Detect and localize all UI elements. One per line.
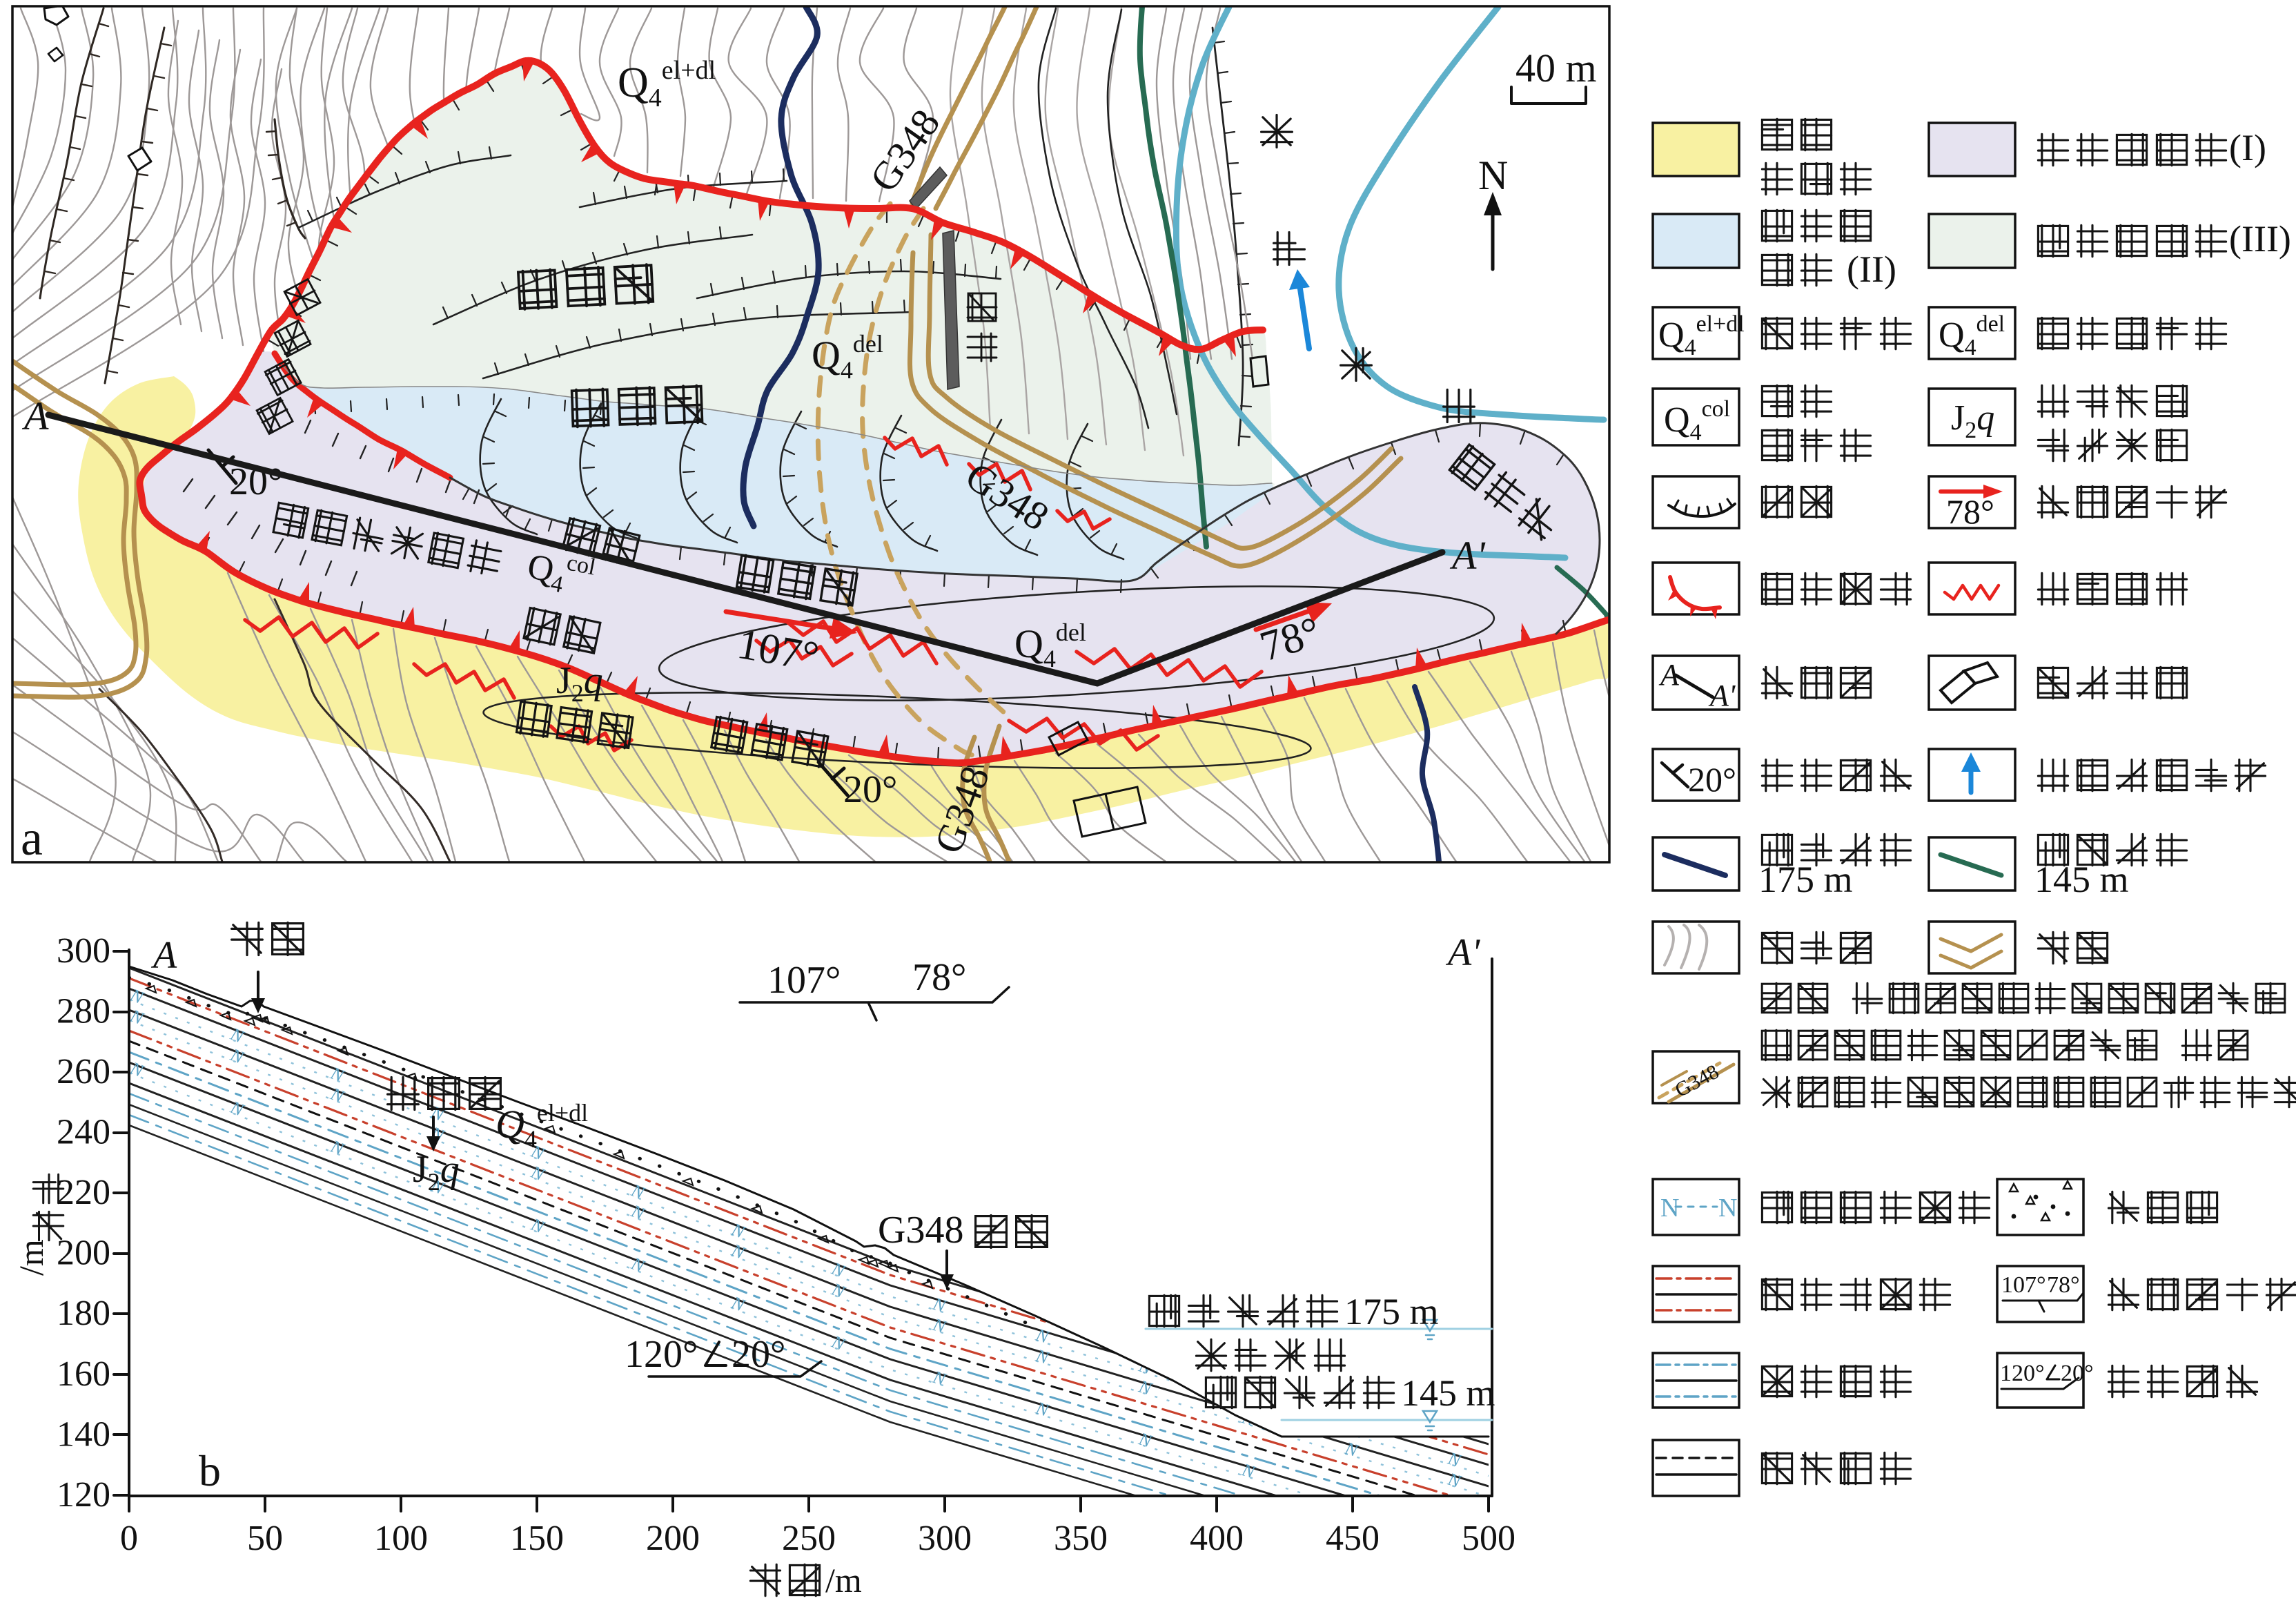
svg-text:(III): (III) [2229, 218, 2291, 260]
svg-text:140: 140 [57, 1414, 110, 1454]
svg-text:100: 100 [374, 1519, 428, 1558]
svg-text:107°: 107° [2001, 1272, 2046, 1298]
svg-text:/m: /m [12, 1239, 50, 1276]
svg-text:300: 300 [918, 1519, 972, 1558]
svg-text:20°: 20° [1688, 760, 1736, 799]
svg-text:(I): (I) [2229, 127, 2266, 168]
svg-text:145 m: 145 m [2034, 859, 2129, 900]
svg-text:40 m: 40 m [1515, 46, 1597, 90]
svg-text:G348: G348 [878, 1209, 963, 1252]
svg-text:A': A' [1449, 533, 1486, 578]
svg-text:N: N [1718, 1194, 1737, 1223]
svg-text:400: 400 [1190, 1519, 1244, 1558]
svg-text:150: 150 [510, 1519, 564, 1558]
svg-text:220: 220 [57, 1173, 110, 1212]
svg-text:78°: 78° [1946, 492, 1994, 531]
svg-text:200: 200 [646, 1519, 700, 1558]
svg-text:175 m: 175 m [1344, 1291, 1439, 1332]
svg-text:175 m: 175 m [1758, 859, 1853, 900]
svg-text:0: 0 [120, 1519, 138, 1558]
svg-text:N: N [1478, 153, 1508, 198]
svg-text:180: 180 [57, 1294, 110, 1333]
svg-text:450: 450 [1326, 1519, 1380, 1558]
svg-text:/m: /m [825, 1561, 862, 1599]
svg-text:240: 240 [57, 1113, 110, 1152]
svg-text:78°: 78° [2047, 1272, 2080, 1298]
svg-text:120°: 120° [2000, 1361, 2045, 1386]
svg-text:A: A [21, 393, 49, 438]
svg-text:78°: 78° [912, 956, 966, 999]
svg-text:350: 350 [1054, 1519, 1108, 1558]
svg-text:280: 280 [57, 992, 110, 1031]
svg-text:300: 300 [57, 931, 110, 971]
svg-text:50: 50 [247, 1519, 283, 1558]
svg-text:145 m: 145 m [1401, 1372, 1495, 1414]
svg-text:N: N [1660, 1194, 1679, 1223]
svg-text:b: b [199, 1446, 221, 1495]
svg-text:120°: 120° [625, 1333, 698, 1376]
svg-text:20°: 20° [843, 768, 897, 811]
svg-text:A: A [150, 934, 177, 977]
svg-text:260: 260 [57, 1052, 110, 1091]
svg-text:500: 500 [1462, 1519, 1515, 1558]
svg-text:250: 250 [782, 1519, 836, 1558]
svg-text:a: a [21, 810, 43, 866]
svg-text:A': A' [1445, 931, 1480, 974]
svg-text:120: 120 [57, 1475, 110, 1515]
svg-text:107°: 107° [767, 959, 841, 1002]
svg-text:20°: 20° [2061, 1361, 2094, 1386]
svg-text:160: 160 [57, 1354, 110, 1394]
svg-text:20°: 20° [732, 1333, 785, 1376]
svg-text:(II): (II) [1847, 249, 1896, 290]
svg-text:200: 200 [57, 1234, 110, 1273]
